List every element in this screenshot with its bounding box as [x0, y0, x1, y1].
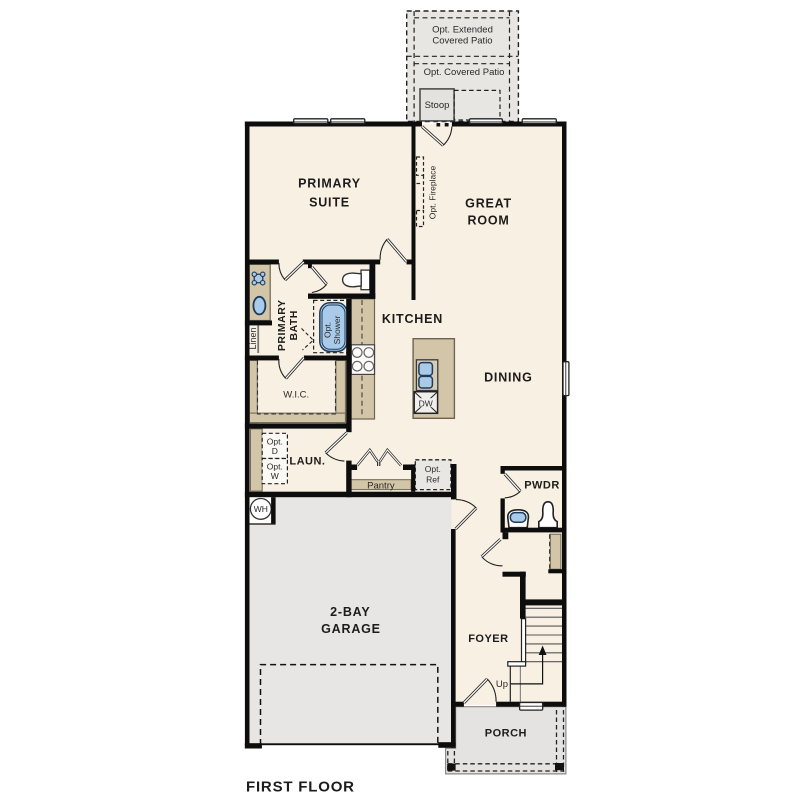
svg-text:FOYER: FOYER: [468, 633, 508, 645]
svg-text:W.I.C.: W.I.C.: [283, 389, 309, 400]
svg-text:Opt.: Opt.: [267, 462, 283, 472]
svg-text:DW: DW: [419, 398, 433, 408]
svg-text:GARAGE: GARAGE: [321, 622, 381, 636]
svg-text:Up: Up: [496, 679, 508, 690]
svg-text:Opt. Fireplace: Opt. Fireplace: [427, 166, 437, 220]
svg-text:DINING: DINING: [484, 371, 533, 385]
svg-text:ROOM: ROOM: [468, 214, 510, 228]
svg-text:WH: WH: [254, 504, 268, 514]
svg-text:Covered Patio: Covered Patio: [432, 36, 492, 47]
svg-text:SUITE: SUITE: [309, 195, 350, 209]
svg-text:D: D: [272, 446, 278, 456]
svg-text:Shower: Shower: [332, 315, 342, 344]
svg-text:PRIMARY: PRIMARY: [276, 300, 288, 352]
svg-text:Opt. Covered Patio: Opt. Covered Patio: [424, 67, 505, 78]
svg-text:Opt.: Opt.: [425, 464, 441, 474]
svg-text:BATH: BATH: [288, 310, 300, 340]
svg-text:PRIMARY: PRIMARY: [298, 177, 361, 191]
svg-text:KITCHEN: KITCHEN: [382, 312, 443, 326]
svg-text:PWDR: PWDR: [524, 479, 560, 491]
svg-text:2-BAY: 2-BAY: [330, 605, 370, 619]
svg-text:Pantry: Pantry: [367, 480, 395, 491]
svg-text:FIRST FLOOR: FIRST FLOOR: [246, 778, 355, 795]
svg-text:GREAT: GREAT: [465, 196, 512, 210]
svg-text:PORCH: PORCH: [485, 728, 527, 740]
svg-text:Opt. Extended: Opt. Extended: [432, 25, 493, 36]
svg-text:LAUN.: LAUN.: [289, 455, 325, 467]
svg-text:W: W: [271, 471, 279, 481]
svg-text:Ref: Ref: [426, 475, 440, 485]
svg-text:Linen: Linen: [248, 327, 258, 349]
svg-text:Stoop: Stoop: [425, 100, 450, 111]
svg-text:Opt.: Opt.: [267, 437, 283, 447]
